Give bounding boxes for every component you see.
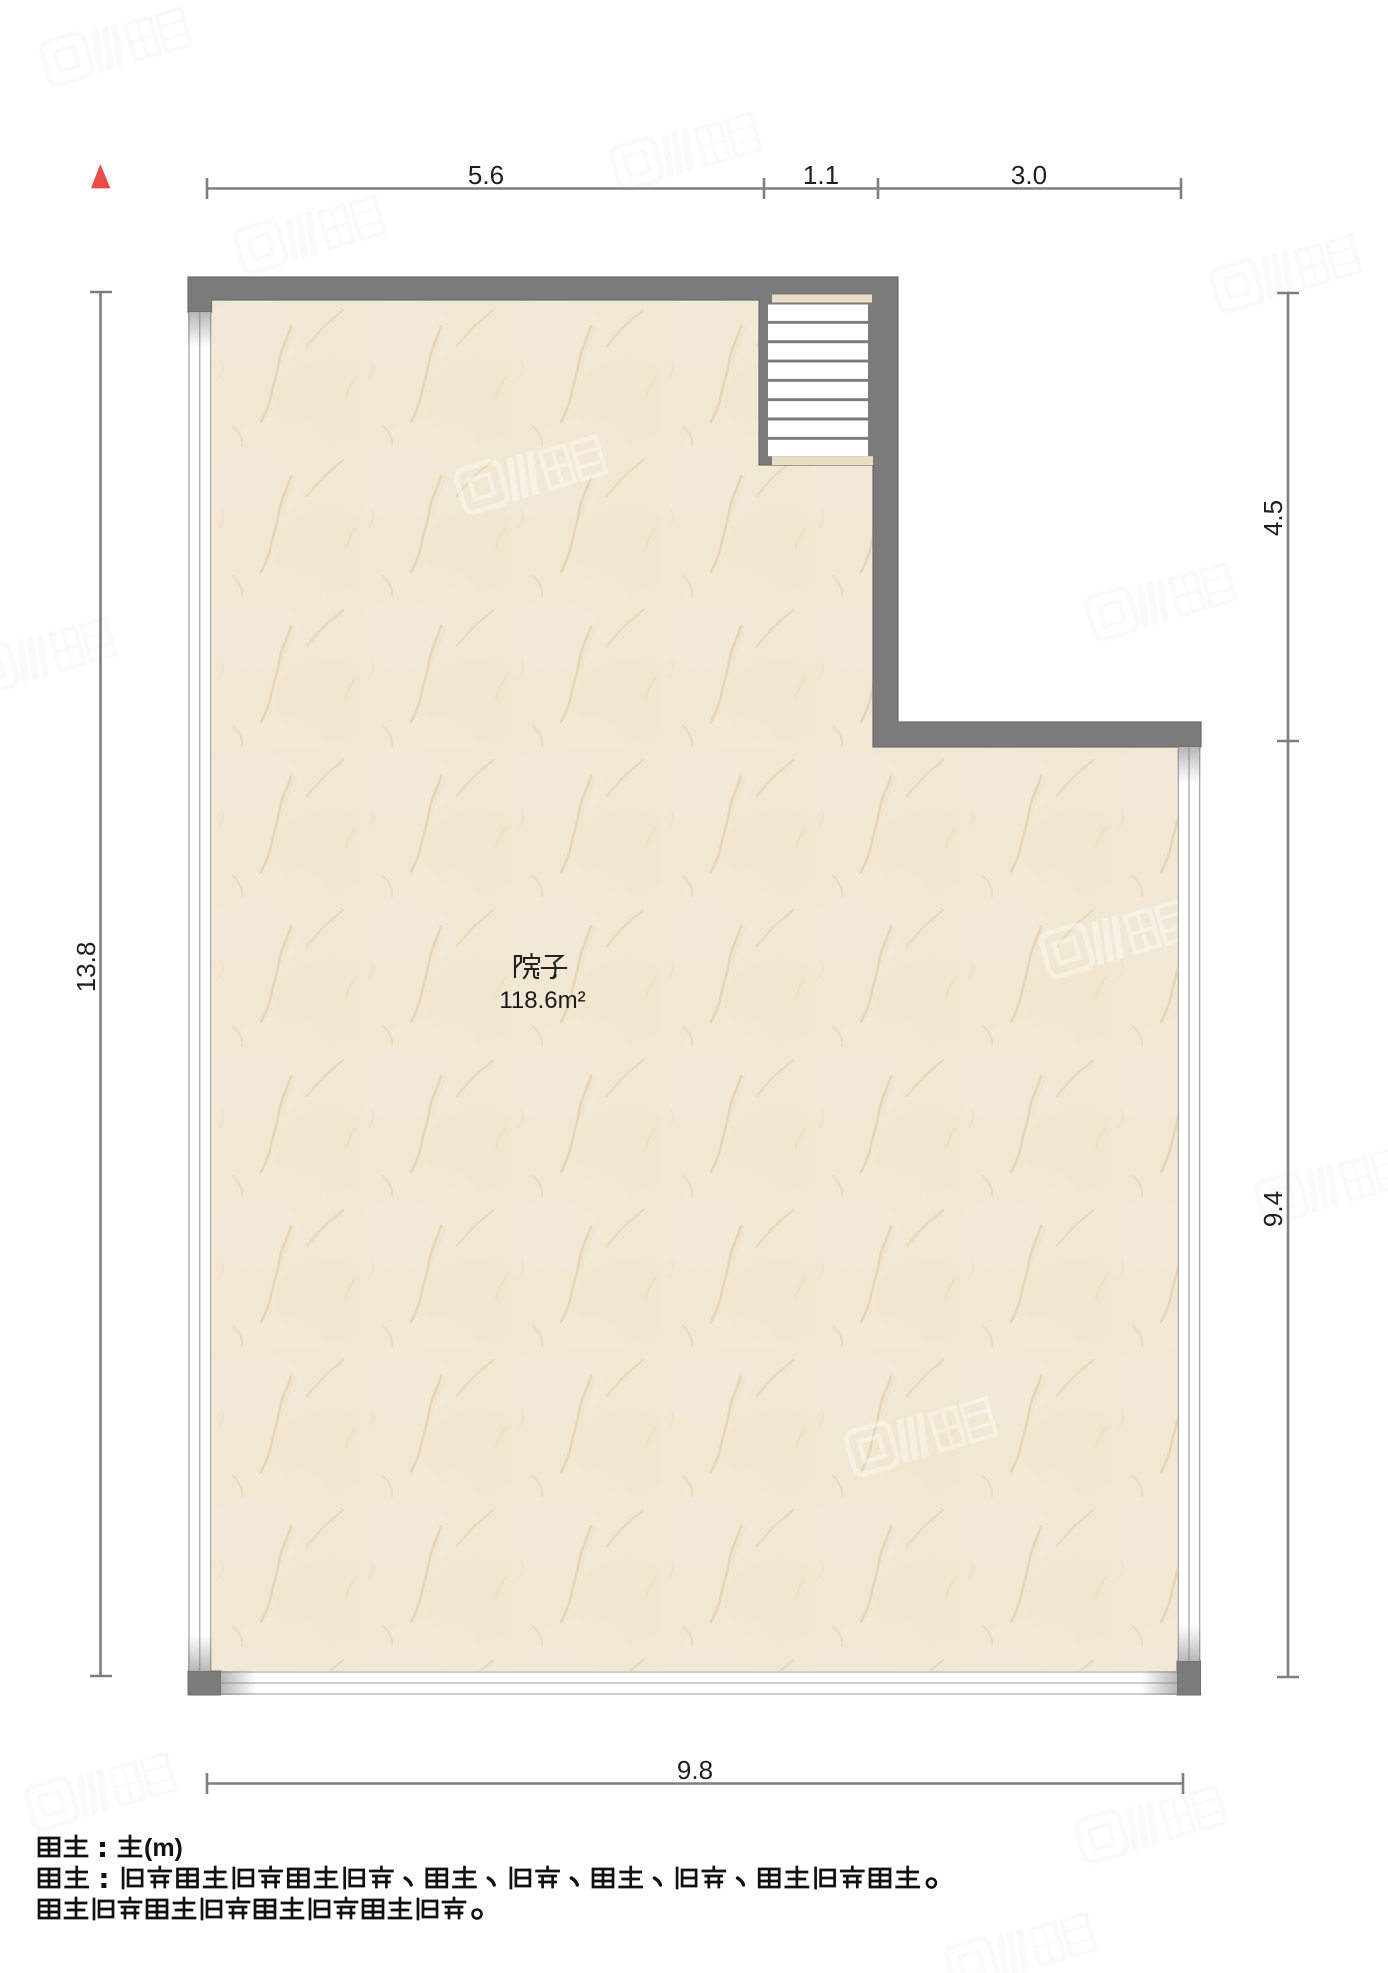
svg-text:1.1: 1.1: [803, 160, 839, 190]
svg-text:118.6m²: 118.6m²: [499, 987, 585, 1014]
svg-text:(m): (m): [144, 1834, 183, 1862]
svg-text:4.5: 4.5: [1258, 500, 1288, 536]
svg-text:13.8: 13.8: [71, 942, 101, 993]
svg-text:9.4: 9.4: [1258, 1191, 1288, 1227]
svg-text:5.6: 5.6: [468, 160, 504, 190]
svg-text:3.0: 3.0: [1011, 160, 1047, 190]
svg-text:9.8: 9.8: [677, 1755, 713, 1785]
